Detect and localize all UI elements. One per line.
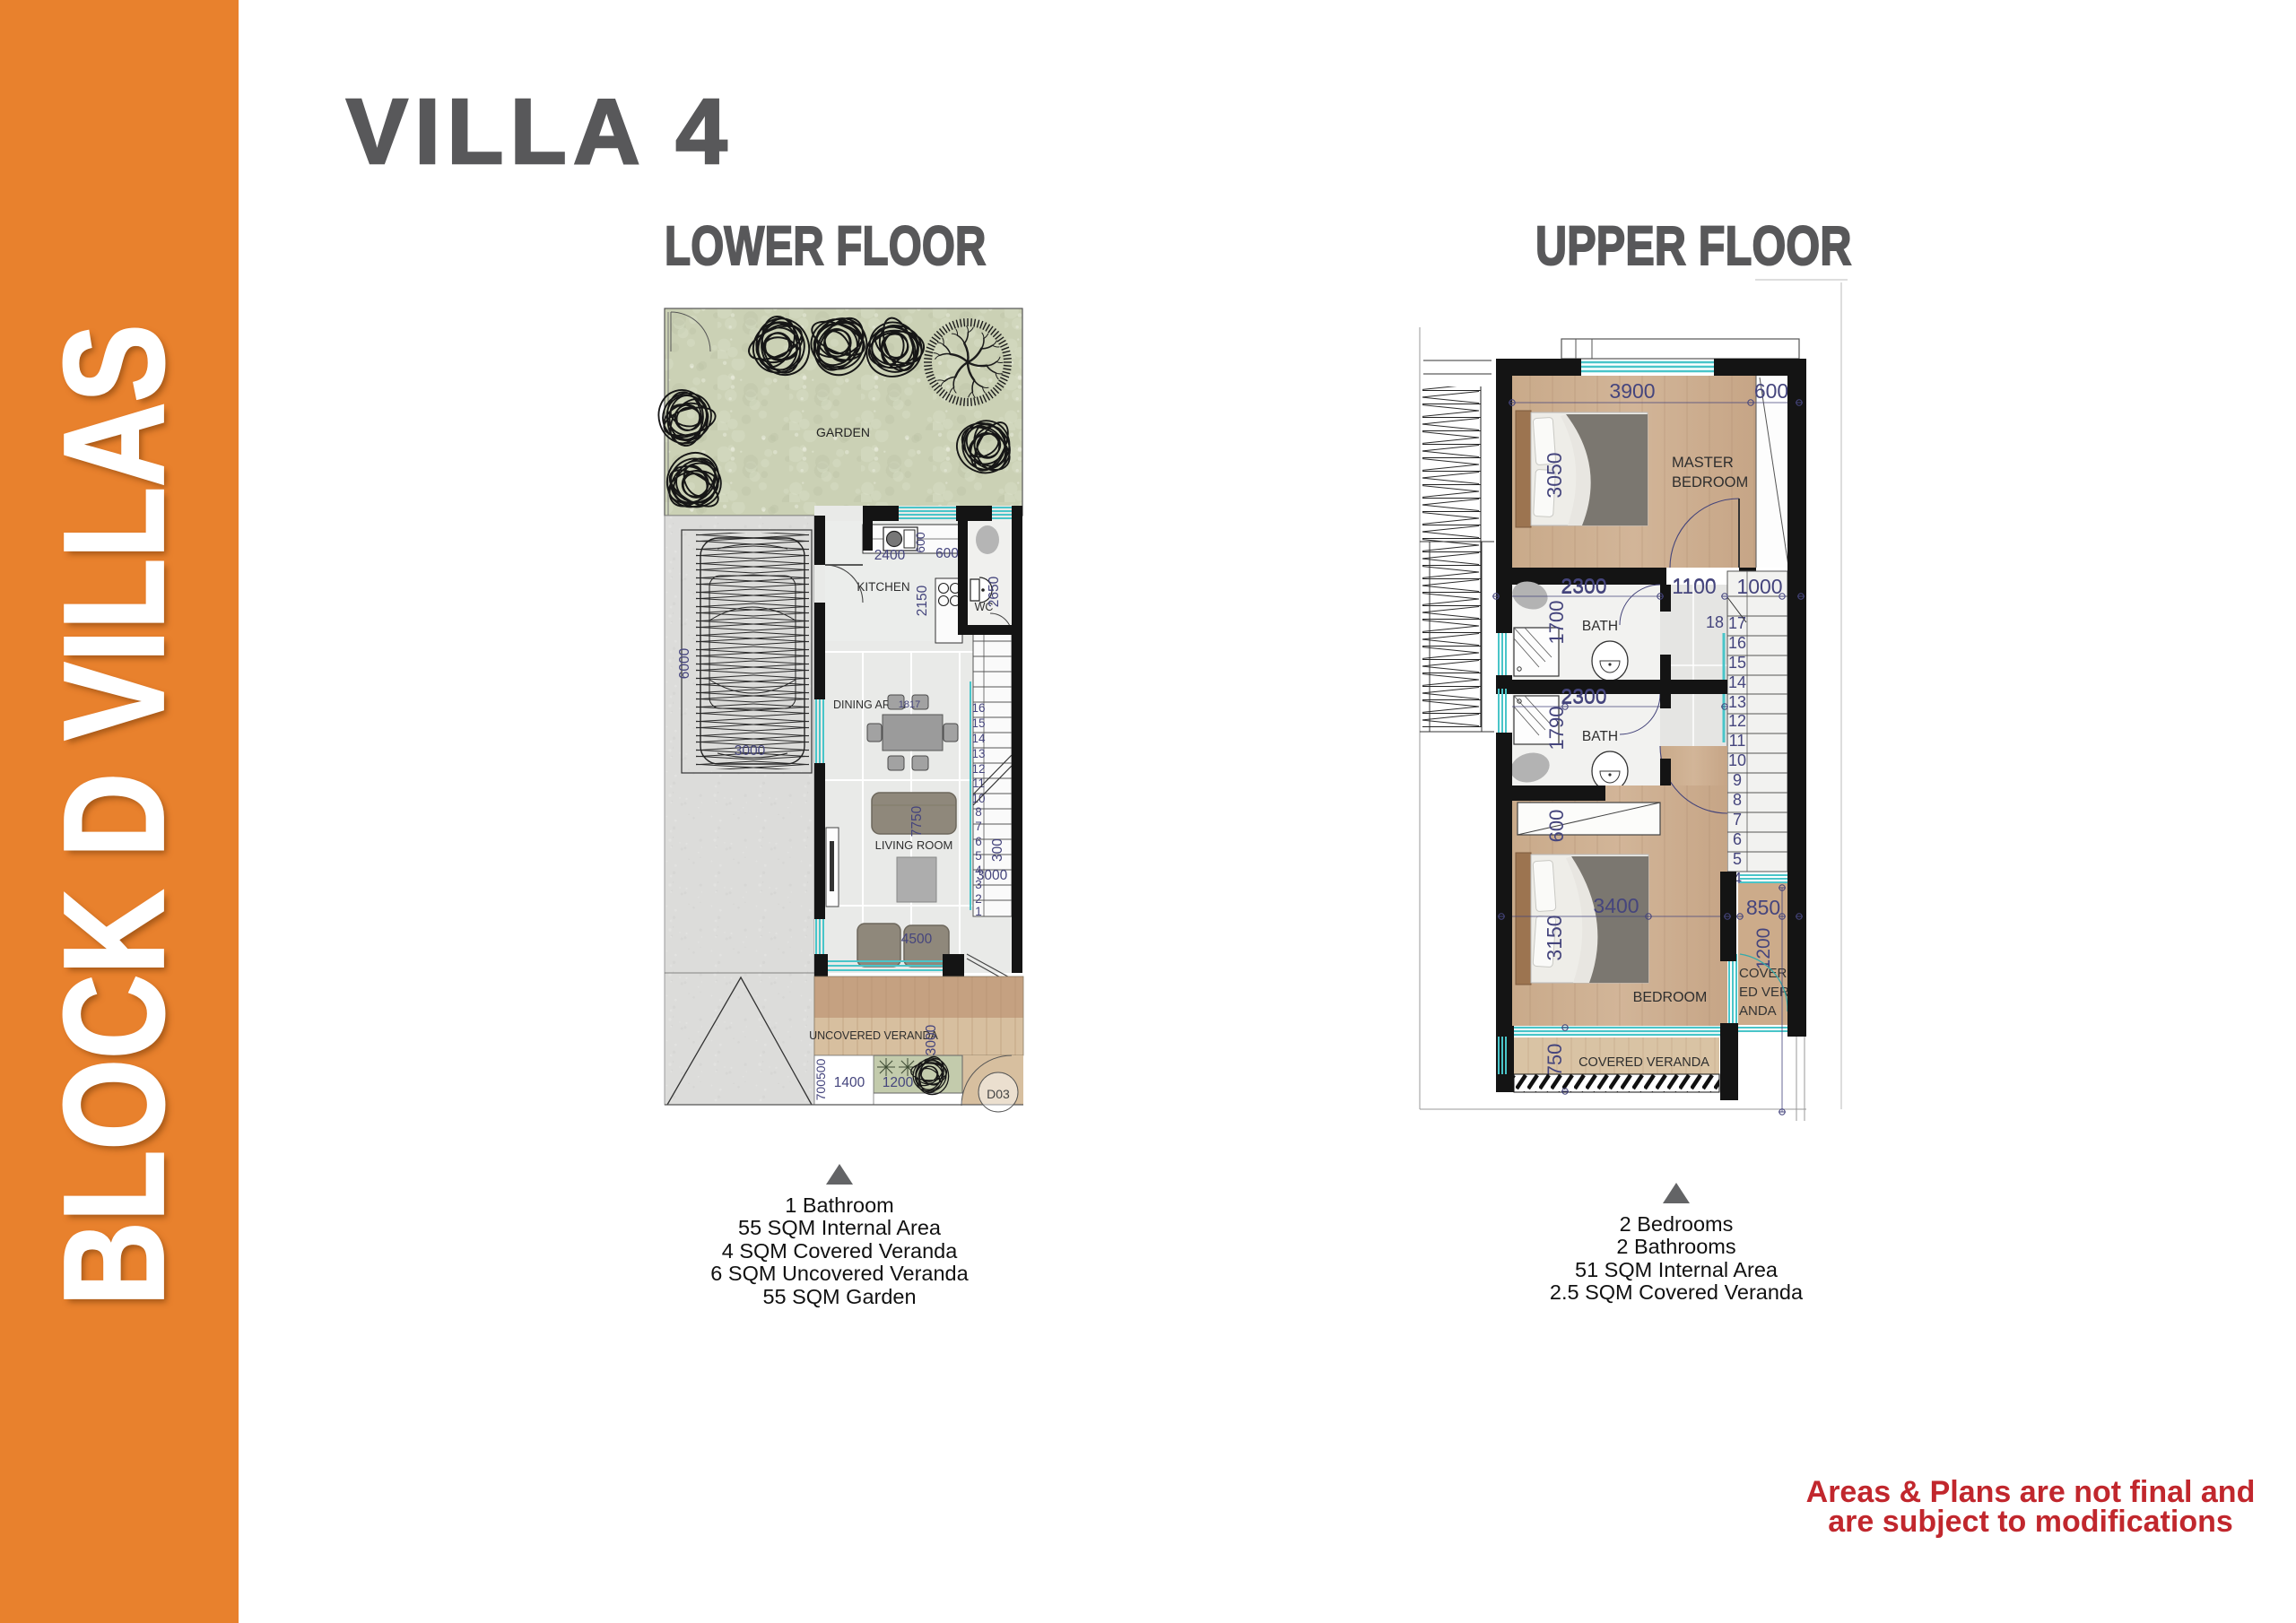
svg-text:2650: 2650 (987, 576, 1002, 607)
svg-text:3000: 3000 (977, 868, 1008, 883)
svg-text:3400: 3400 (1593, 894, 1639, 917)
svg-text:12: 12 (1728, 712, 1746, 730)
svg-text:BATH: BATH (1582, 619, 1618, 634)
svg-text:6: 6 (975, 835, 982, 848)
svg-text:1100: 1100 (1672, 575, 1716, 598)
svg-text:D03: D03 (987, 1087, 1010, 1101)
svg-text:3000: 3000 (924, 1024, 939, 1055)
svg-text:ANDA: ANDA (1739, 1003, 1777, 1019)
svg-text:15: 15 (1728, 654, 1746, 672)
svg-text:1200: 1200 (883, 1075, 914, 1090)
svg-text:600: 600 (1545, 810, 1568, 843)
svg-text:15: 15 (971, 716, 985, 730)
svg-text:11: 11 (972, 777, 985, 790)
svg-text:7: 7 (975, 820, 982, 833)
svg-text:4500: 4500 (901, 932, 933, 947)
svg-text:10: 10 (1728, 751, 1746, 769)
svg-text:1400: 1400 (834, 1075, 865, 1090)
svg-text:14: 14 (1728, 673, 1746, 691)
svg-text:1817: 1817 (899, 699, 920, 710)
svg-text:MASTER: MASTER (1672, 455, 1734, 471)
svg-text:13: 13 (1728, 693, 1746, 711)
svg-text:7: 7 (1733, 811, 1742, 829)
svg-text:300: 300 (990, 838, 1005, 862)
svg-text:6000: 6000 (677, 647, 692, 679)
svg-text:16: 16 (1728, 634, 1746, 652)
svg-text:750: 750 (1544, 1044, 1566, 1077)
svg-text:12: 12 (971, 762, 985, 776)
svg-text:700500: 700500 (813, 1058, 828, 1100)
svg-text:7750: 7750 (909, 805, 925, 837)
svg-text:2300: 2300 (1561, 575, 1606, 598)
svg-text:BEDROOM: BEDROOM (1672, 474, 1748, 490)
svg-text:18: 18 (1706, 613, 1724, 631)
svg-text:1000: 1000 (1736, 575, 1782, 598)
svg-text:3050: 3050 (1543, 452, 1566, 498)
svg-text:BEDROOM: BEDROOM (1633, 990, 1708, 1005)
svg-text:KITCHEN: KITCHEN (857, 580, 909, 594)
svg-text:5: 5 (975, 849, 982, 863)
svg-text:8: 8 (1733, 791, 1742, 809)
svg-text:UNCOVERED VERANDA: UNCOVERED VERANDA (809, 1029, 938, 1042)
svg-text:5: 5 (1733, 850, 1742, 868)
svg-text:1700: 1700 (1545, 601, 1568, 645)
svg-text:LIVING ROOM: LIVING ROOM (875, 838, 953, 852)
svg-text:2400: 2400 (874, 548, 906, 563)
svg-text:13: 13 (971, 747, 985, 760)
svg-text:6: 6 (1733, 830, 1742, 848)
svg-text:1: 1 (975, 905, 982, 918)
svg-text:600: 600 (935, 546, 959, 561)
svg-text:COVERED VERANDA: COVERED VERANDA (1578, 1055, 1709, 1070)
svg-text:BATH: BATH (1582, 729, 1618, 744)
svg-text:14: 14 (971, 732, 986, 745)
svg-text:850: 850 (1746, 896, 1780, 919)
svg-text:8: 8 (975, 805, 982, 819)
svg-text:2150: 2150 (915, 585, 930, 616)
svg-text:9: 9 (1733, 771, 1742, 789)
svg-text:17: 17 (1728, 614, 1746, 632)
svg-text:1790: 1790 (1545, 707, 1568, 751)
svg-text:2: 2 (975, 892, 982, 906)
svg-text:600: 600 (913, 532, 927, 553)
svg-text:GARDEN: GARDEN (816, 425, 870, 439)
svg-text:3900: 3900 (1609, 379, 1655, 403)
svg-text:16: 16 (971, 701, 985, 715)
svg-text:600: 600 (1754, 379, 1788, 403)
svg-text:3150: 3150 (1543, 915, 1566, 960)
svg-text:3000: 3000 (735, 743, 766, 759)
svg-text:11: 11 (1729, 732, 1746, 750)
